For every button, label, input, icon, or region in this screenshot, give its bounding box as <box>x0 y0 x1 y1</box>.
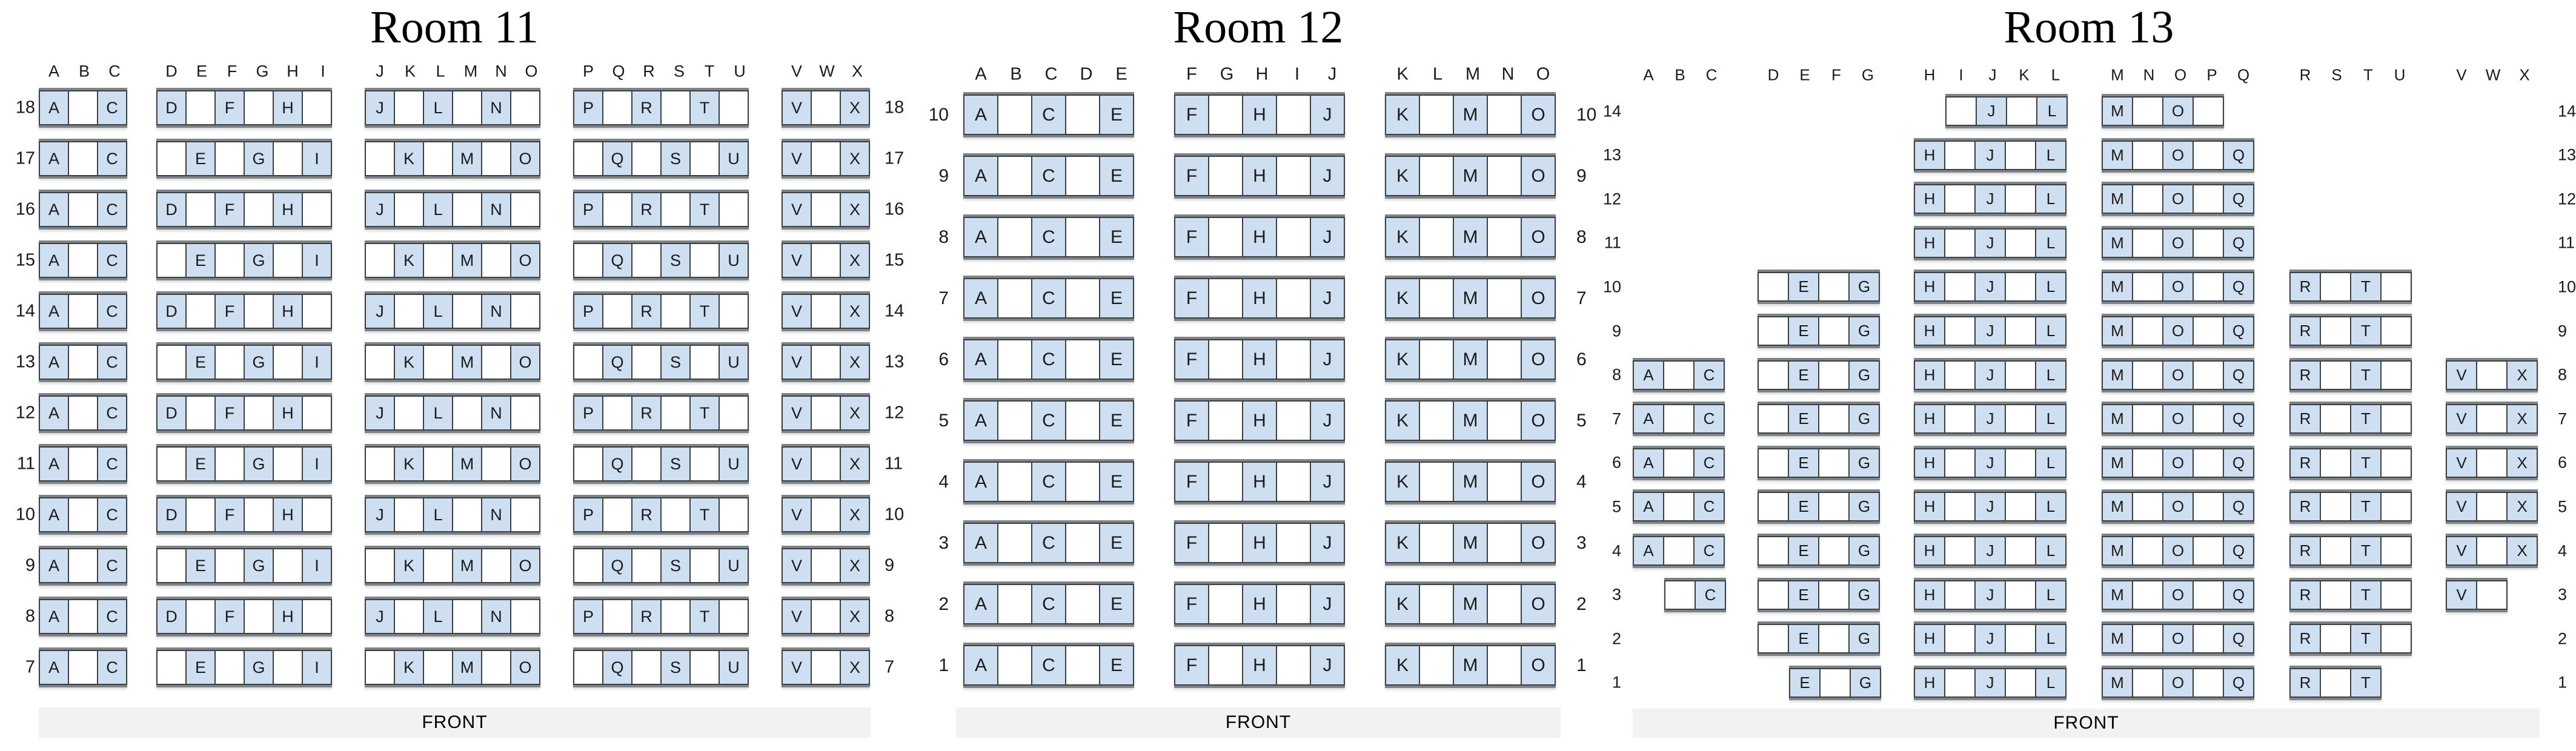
seat-room-12-6A[interactable]: A <box>963 339 998 380</box>
seat-room-11-10C[interactable]: C <box>97 497 127 532</box>
seat-room-13-10J[interactable]: J <box>1974 272 2006 302</box>
seat-room-13-7E[interactable]: E <box>1788 404 1819 434</box>
seat-room-11-8R[interactable]: R <box>631 599 662 634</box>
seat-room-13-11L[interactable]: L <box>2035 228 2066 258</box>
seat-room-12-9C[interactable]: C <box>1031 156 1066 196</box>
seat-room-13-4R[interactable]: R <box>2289 536 2321 566</box>
seat-room-12-4O[interactable]: O <box>1521 462 1556 502</box>
seat-room-13-13H[interactable]: H <box>1914 141 1945 170</box>
seat-room-11-7U[interactable]: U <box>719 650 749 685</box>
seat-room-12-3M[interactable]: M <box>1453 523 1488 563</box>
seat-room-11-11V[interactable]: V <box>782 446 812 481</box>
seat-room-11-11A[interactable]: A <box>39 446 69 481</box>
seat-room-13-8C[interactable]: C <box>1693 360 1725 390</box>
seat-room-13-5H[interactable]: H <box>1914 492 1945 521</box>
seat-room-13-4L[interactable]: L <box>2035 536 2066 566</box>
seat-room-13-9M[interactable]: M <box>2102 316 2133 346</box>
seat-room-12-2H[interactable]: H <box>1242 584 1277 624</box>
seat-room-12-8E[interactable]: E <box>1099 217 1134 257</box>
seat-room-12-8C[interactable]: C <box>1031 217 1066 257</box>
seat-room-12-8A[interactable]: A <box>963 217 998 257</box>
seat-room-12-5F[interactable]: F <box>1174 400 1209 441</box>
seat-room-13-8O[interactable]: O <box>2162 360 2194 390</box>
seat-room-12-3H[interactable]: H <box>1242 523 1277 563</box>
seat-room-13-13Q[interactable]: Q <box>2223 141 2254 170</box>
seat-room-11-17E[interactable]: E <box>185 141 216 176</box>
seat-room-13-7C[interactable]: C <box>1693 404 1725 434</box>
seat-room-11-11E[interactable]: E <box>185 446 216 481</box>
seat-room-13-5T[interactable]: T <box>2350 492 2382 521</box>
seat-room-13-2R[interactable]: R <box>2289 624 2321 653</box>
seat-room-13-2H[interactable]: H <box>1914 624 1945 653</box>
seat-room-11-15E[interactable]: E <box>185 243 216 278</box>
seat-room-13-6A[interactable]: A <box>1633 448 1664 478</box>
seat-room-13-5R[interactable]: R <box>2289 492 2321 521</box>
seat-room-13-12M[interactable]: M <box>2102 184 2133 214</box>
seat-room-11-7A[interactable]: A <box>39 650 69 685</box>
seat-room-13-3G[interactable]: G <box>1848 580 1880 610</box>
seat-room-11-16N[interactable]: N <box>481 192 511 227</box>
seat-room-11-10V[interactable]: V <box>782 497 812 532</box>
seat-room-13-10R[interactable]: R <box>2289 272 2321 302</box>
seat-room-11-10H[interactable]: H <box>273 497 303 532</box>
seat-room-13-10Q[interactable]: Q <box>2223 272 2254 302</box>
seat-room-11-11Q[interactable]: Q <box>602 446 632 481</box>
seat-room-11-15K[interactable]: K <box>394 243 424 278</box>
seat-room-13-9Q[interactable]: Q <box>2223 316 2254 346</box>
seat-room-12-9F[interactable]: F <box>1174 156 1209 196</box>
seat-room-13-7A[interactable]: A <box>1633 404 1664 434</box>
seat-room-12-3F[interactable]: F <box>1174 523 1209 563</box>
seat-room-13-11J[interactable]: J <box>1974 228 2006 258</box>
seat-room-11-17M[interactable]: M <box>452 141 482 176</box>
seat-room-12-3A[interactable]: A <box>963 523 998 563</box>
seat-room-13-2M[interactable]: M <box>2102 624 2133 653</box>
seat-room-11-8H[interactable]: H <box>273 599 303 634</box>
seat-room-13-4G[interactable]: G <box>1848 536 1880 566</box>
seat-room-13-10O[interactable]: O <box>2162 272 2194 302</box>
seat-room-12-10C[interactable]: C <box>1031 94 1066 135</box>
seat-room-13-7V[interactable]: V <box>2446 404 2477 434</box>
seat-room-13-6H[interactable]: H <box>1914 448 1945 478</box>
seat-room-11-8F[interactable]: F <box>214 599 245 634</box>
seat-room-11-18V[interactable]: V <box>782 90 812 125</box>
seat-room-12-9M[interactable]: M <box>1453 156 1488 196</box>
seat-room-13-9T[interactable]: T <box>2350 316 2382 346</box>
seat-room-11-13X[interactable]: X <box>840 345 870 380</box>
seat-room-11-8V[interactable]: V <box>782 599 812 634</box>
seat-room-12-6H[interactable]: H <box>1242 339 1277 380</box>
seat-room-11-12F[interactable]: F <box>214 395 245 431</box>
seat-room-11-18T[interactable]: T <box>689 90 720 125</box>
seat-room-13-12O[interactable]: O <box>2162 184 2194 214</box>
seat-room-13-14M[interactable]: M <box>2102 96 2133 126</box>
seat-room-11-8T[interactable]: T <box>689 599 720 634</box>
seat-room-13-1E[interactable]: E <box>1789 668 1821 698</box>
seat-room-11-13I[interactable]: I <box>302 345 332 380</box>
seat-room-13-8M[interactable]: M <box>2102 360 2133 390</box>
seat-room-13-4T[interactable]: T <box>2350 536 2382 566</box>
seat-room-11-18N[interactable]: N <box>481 90 511 125</box>
seat-room-11-13C[interactable]: C <box>97 345 127 380</box>
seat-room-12-7M[interactable]: M <box>1453 278 1488 319</box>
seat-room-11-9Q[interactable]: Q <box>602 548 632 583</box>
seat-room-13-1M[interactable]: M <box>2102 668 2133 698</box>
seat-room-11-15G[interactable]: G <box>244 243 274 278</box>
seat-room-12-5K[interactable]: K <box>1385 400 1420 441</box>
seat-room-11-14H[interactable]: H <box>273 294 303 329</box>
seat-room-11-9A[interactable]: A <box>39 548 69 583</box>
seat-room-13-2T[interactable]: T <box>2350 624 2382 653</box>
seat-room-13-4O[interactable]: O <box>2162 536 2194 566</box>
seat-room-11-13G[interactable]: G <box>244 345 274 380</box>
seat-room-13-3H[interactable]: H <box>1914 580 1945 610</box>
seat-room-11-7M[interactable]: M <box>452 650 482 685</box>
seat-room-11-15Q[interactable]: Q <box>602 243 632 278</box>
seat-room-11-10X[interactable]: X <box>840 497 870 532</box>
seat-room-11-18X[interactable]: X <box>840 90 870 125</box>
seat-room-13-6C[interactable]: C <box>1693 448 1725 478</box>
seat-room-12-2C[interactable]: C <box>1031 584 1066 624</box>
seat-room-12-3K[interactable]: K <box>1385 523 1420 563</box>
seat-room-13-9J[interactable]: J <box>1974 316 2006 346</box>
seat-room-13-1H[interactable]: H <box>1914 668 1945 698</box>
seat-room-13-6X[interactable]: X <box>2506 448 2538 478</box>
seat-room-12-7J[interactable]: J <box>1310 278 1345 319</box>
seat-room-11-17I[interactable]: I <box>302 141 332 176</box>
seat-room-13-7R[interactable]: R <box>2289 404 2321 434</box>
seat-room-13-1R[interactable]: R <box>2289 668 2321 698</box>
seat-room-11-9X[interactable]: X <box>840 548 870 583</box>
seat-room-11-9E[interactable]: E <box>185 548 216 583</box>
seat-room-11-13V[interactable]: V <box>782 345 812 380</box>
seat-room-12-6E[interactable]: E <box>1099 339 1134 380</box>
seat-room-12-2O[interactable]: O <box>1521 584 1556 624</box>
seat-room-11-17U[interactable]: U <box>719 141 749 176</box>
seat-room-13-3O[interactable]: O <box>2162 580 2194 610</box>
seat-room-13-8H[interactable]: H <box>1914 360 1945 390</box>
seat-room-13-7M[interactable]: M <box>2102 404 2133 434</box>
seat-room-11-12D[interactable]: D <box>156 395 187 431</box>
seat-room-11-8P[interactable]: P <box>573 599 603 634</box>
seat-room-11-7X[interactable]: X <box>840 650 870 685</box>
seat-room-11-12R[interactable]: R <box>631 395 662 431</box>
seat-room-12-10J[interactable]: J <box>1310 94 1345 135</box>
seat-room-13-5A[interactable]: A <box>1633 492 1664 521</box>
seat-room-13-10L[interactable]: L <box>2035 272 2066 302</box>
seat-room-13-5L[interactable]: L <box>2035 492 2066 521</box>
seat-room-11-17V[interactable]: V <box>782 141 812 176</box>
seat-room-11-8L[interactable]: L <box>423 599 453 634</box>
seat-room-13-9R[interactable]: R <box>2289 316 2321 346</box>
seat-room-11-8D[interactable]: D <box>156 599 187 634</box>
seat-room-13-3L[interactable]: L <box>2035 580 2066 610</box>
seat-room-13-11Q[interactable]: Q <box>2223 228 2254 258</box>
seat-room-11-14V[interactable]: V <box>782 294 812 329</box>
seat-room-13-3R[interactable]: R <box>2289 580 2321 610</box>
seat-room-13-5G[interactable]: G <box>1848 492 1880 521</box>
seat-room-11-12H[interactable]: H <box>273 395 303 431</box>
seat-room-11-10P[interactable]: P <box>573 497 603 532</box>
seat-room-12-10F[interactable]: F <box>1174 94 1209 135</box>
seat-room-11-15A[interactable]: A <box>39 243 69 278</box>
seat-room-12-6F[interactable]: F <box>1174 339 1209 380</box>
seat-room-11-7C[interactable]: C <box>97 650 127 685</box>
seat-room-13-6T[interactable]: T <box>2350 448 2382 478</box>
seat-room-11-12V[interactable]: V <box>782 395 812 431</box>
seat-room-13-9L[interactable]: L <box>2035 316 2066 346</box>
seat-room-11-14N[interactable]: N <box>481 294 511 329</box>
seat-room-12-4A[interactable]: A <box>963 462 998 502</box>
seat-room-12-6J[interactable]: J <box>1310 339 1345 380</box>
seat-room-12-9J[interactable]: J <box>1310 156 1345 196</box>
seat-room-13-7J[interactable]: J <box>1974 404 2006 434</box>
seat-room-11-10F[interactable]: F <box>214 497 245 532</box>
seat-room-12-9A[interactable]: A <box>963 156 998 196</box>
seat-room-13-6Q[interactable]: Q <box>2223 448 2254 478</box>
seat-room-12-8J[interactable]: J <box>1310 217 1345 257</box>
seat-room-11-7O[interactable]: O <box>510 650 540 685</box>
seat-room-13-14L[interactable]: L <box>2036 96 2068 126</box>
seat-room-11-16L[interactable]: L <box>423 192 453 227</box>
seat-room-12-4K[interactable]: K <box>1385 462 1420 502</box>
seat-room-12-3O[interactable]: O <box>1521 523 1556 563</box>
seat-room-12-3J[interactable]: J <box>1310 523 1345 563</box>
seat-room-11-13O[interactable]: O <box>510 345 540 380</box>
seat-room-13-13J[interactable]: J <box>1974 141 2006 170</box>
seat-room-13-10M[interactable]: M <box>2102 272 2133 302</box>
seat-room-13-1Q[interactable]: Q <box>2223 668 2254 698</box>
seat-room-12-2A[interactable]: A <box>963 584 998 624</box>
seat-room-11-13M[interactable]: M <box>452 345 482 380</box>
seat-room-11-13K[interactable]: K <box>394 345 424 380</box>
seat-room-11-16H[interactable]: H <box>273 192 303 227</box>
seat-room-11-13S[interactable]: S <box>660 345 691 380</box>
seat-room-11-10J[interactable]: J <box>365 497 395 532</box>
seat-room-12-5M[interactable]: M <box>1453 400 1488 441</box>
seat-room-11-8J[interactable]: J <box>365 599 395 634</box>
seat-room-11-18F[interactable]: F <box>214 90 245 125</box>
seat-room-12-9E[interactable]: E <box>1099 156 1134 196</box>
seat-room-13-4C[interactable]: C <box>1693 536 1725 566</box>
seat-room-13-5C[interactable]: C <box>1693 492 1725 521</box>
seat-room-12-1C[interactable]: C <box>1031 645 1066 686</box>
seat-room-13-2G[interactable]: G <box>1848 624 1880 653</box>
seat-room-12-6O[interactable]: O <box>1521 339 1556 380</box>
seat-room-12-7K[interactable]: K <box>1385 278 1420 319</box>
seat-room-11-12T[interactable]: T <box>689 395 720 431</box>
seat-room-13-9H[interactable]: H <box>1914 316 1945 346</box>
seat-room-11-14R[interactable]: R <box>631 294 662 329</box>
seat-room-13-4J[interactable]: J <box>1974 536 2006 566</box>
seat-room-11-9V[interactable]: V <box>782 548 812 583</box>
seat-room-11-7V[interactable]: V <box>782 650 812 685</box>
seat-room-13-1G[interactable]: G <box>1850 668 1881 698</box>
seat-room-12-4H[interactable]: H <box>1242 462 1277 502</box>
seat-room-13-11O[interactable]: O <box>2162 228 2194 258</box>
seat-room-11-9O[interactable]: O <box>510 548 540 583</box>
seat-room-13-8G[interactable]: G <box>1848 360 1880 390</box>
seat-room-11-11I[interactable]: I <box>302 446 332 481</box>
seat-room-13-3J[interactable]: J <box>1974 580 2006 610</box>
seat-room-11-10D[interactable]: D <box>156 497 187 532</box>
seat-room-13-3E[interactable]: E <box>1788 580 1819 610</box>
seat-room-11-13A[interactable]: A <box>39 345 69 380</box>
seat-room-12-8M[interactable]: M <box>1453 217 1488 257</box>
seat-room-11-18J[interactable]: J <box>365 90 395 125</box>
seat-room-13-7Q[interactable]: Q <box>2223 404 2254 434</box>
seat-room-12-2M[interactable]: M <box>1453 584 1488 624</box>
seat-room-11-12J[interactable]: J <box>365 395 395 431</box>
seat-room-11-16J[interactable]: J <box>365 192 395 227</box>
seat-room-13-1L[interactable]: L <box>2035 668 2066 698</box>
seat-room-11-13E[interactable]: E <box>185 345 216 380</box>
seat-room-13-4X[interactable]: X <box>2506 536 2538 566</box>
seat-room-11-13Q[interactable]: Q <box>602 345 632 380</box>
seat-room-12-10E[interactable]: E <box>1099 94 1134 135</box>
seat-room-12-6C[interactable]: C <box>1031 339 1066 380</box>
seat-room-13-9E[interactable]: E <box>1788 316 1819 346</box>
seat-room-12-7C[interactable]: C <box>1031 278 1066 319</box>
seat-room-11-18R[interactable]: R <box>631 90 662 125</box>
seat-room-11-18D[interactable]: D <box>156 90 187 125</box>
seat-room-13-14O[interactable]: O <box>2162 96 2194 126</box>
seat-room-12-3C[interactable]: C <box>1031 523 1066 563</box>
seat-room-13-12H[interactable]: H <box>1914 184 1945 214</box>
seat-room-11-14X[interactable]: X <box>840 294 870 329</box>
seat-room-11-11K[interactable]: K <box>394 446 424 481</box>
seat-room-13-2J[interactable]: J <box>1974 624 2006 653</box>
seat-room-11-14P[interactable]: P <box>573 294 603 329</box>
seat-room-12-2E[interactable]: E <box>1099 584 1134 624</box>
seat-room-13-7H[interactable]: H <box>1914 404 1945 434</box>
seat-room-11-18C[interactable]: C <box>97 90 127 125</box>
seat-room-13-5O[interactable]: O <box>2162 492 2194 521</box>
seat-room-11-16P[interactable]: P <box>573 192 603 227</box>
seat-room-12-10O[interactable]: O <box>1521 94 1556 135</box>
seat-room-13-9O[interactable]: O <box>2162 316 2194 346</box>
seat-room-13-12Q[interactable]: Q <box>2223 184 2254 214</box>
seat-room-13-12J[interactable]: J <box>1974 184 2006 214</box>
seat-room-11-14D[interactable]: D <box>156 294 187 329</box>
seat-room-13-10G[interactable]: G <box>1848 272 1880 302</box>
seat-room-13-12L[interactable]: L <box>2035 184 2066 214</box>
seat-room-11-7G[interactable]: G <box>244 650 274 685</box>
seat-room-11-17C[interactable]: C <box>97 141 127 176</box>
seat-room-11-9K[interactable]: K <box>394 548 424 583</box>
seat-room-11-10N[interactable]: N <box>481 497 511 532</box>
seat-room-11-12N[interactable]: N <box>481 395 511 431</box>
seat-room-12-5J[interactable]: J <box>1310 400 1345 441</box>
seat-room-11-12P[interactable]: P <box>573 395 603 431</box>
seat-room-13-10H[interactable]: H <box>1914 272 1945 302</box>
seat-room-13-1J[interactable]: J <box>1974 668 2006 698</box>
seat-room-13-8L[interactable]: L <box>2035 360 2066 390</box>
seat-room-12-4F[interactable]: F <box>1174 462 1209 502</box>
seat-room-11-11O[interactable]: O <box>510 446 540 481</box>
seat-room-13-11H[interactable]: H <box>1914 228 1945 258</box>
seat-room-11-7S[interactable]: S <box>660 650 691 685</box>
seat-room-13-4E[interactable]: E <box>1788 536 1819 566</box>
seat-room-12-7F[interactable]: F <box>1174 278 1209 319</box>
seat-room-11-16X[interactable]: X <box>840 192 870 227</box>
seat-room-11-15M[interactable]: M <box>452 243 482 278</box>
seat-room-12-2K[interactable]: K <box>1385 584 1420 624</box>
seat-room-12-5H[interactable]: H <box>1242 400 1277 441</box>
seat-room-13-3T[interactable]: T <box>2350 580 2382 610</box>
seat-room-12-1J[interactable]: J <box>1310 645 1345 686</box>
seat-room-13-7T[interactable]: T <box>2350 404 2382 434</box>
seat-room-12-5E[interactable]: E <box>1099 400 1134 441</box>
seat-room-13-5J[interactable]: J <box>1974 492 2006 521</box>
seat-room-11-16D[interactable]: D <box>156 192 187 227</box>
seat-room-13-1T[interactable]: T <box>2350 668 2382 698</box>
seat-room-13-10E[interactable]: E <box>1788 272 1819 302</box>
seat-room-12-2F[interactable]: F <box>1174 584 1209 624</box>
seat-room-11-17O[interactable]: O <box>510 141 540 176</box>
seat-room-11-12C[interactable]: C <box>97 395 127 431</box>
seat-room-12-9O[interactable]: O <box>1521 156 1556 196</box>
seat-room-13-14J[interactable]: J <box>1976 96 2007 126</box>
seat-room-12-3E[interactable]: E <box>1099 523 1134 563</box>
seat-room-11-16V[interactable]: V <box>782 192 812 227</box>
seat-room-13-8E[interactable]: E <box>1788 360 1819 390</box>
seat-room-12-8F[interactable]: F <box>1174 217 1209 257</box>
seat-room-13-4A[interactable]: A <box>1633 536 1664 566</box>
seat-room-13-8R[interactable]: R <box>2289 360 2321 390</box>
seat-room-11-13U[interactable]: U <box>719 345 749 380</box>
seat-room-12-6M[interactable]: M <box>1453 339 1488 380</box>
seat-room-13-7L[interactable]: L <box>2035 404 2066 434</box>
seat-room-11-11G[interactable]: G <box>244 446 274 481</box>
seat-room-13-6G[interactable]: G <box>1848 448 1880 478</box>
seat-room-13-7O[interactable]: O <box>2162 404 2194 434</box>
seat-room-11-8X[interactable]: X <box>840 599 870 634</box>
seat-room-12-7A[interactable]: A <box>963 278 998 319</box>
seat-room-12-9H[interactable]: H <box>1242 156 1277 196</box>
seat-room-13-4H[interactable]: H <box>1914 536 1945 566</box>
seat-room-13-6V[interactable]: V <box>2446 448 2477 478</box>
seat-room-12-10M[interactable]: M <box>1453 94 1488 135</box>
seat-room-12-10H[interactable]: H <box>1242 94 1277 135</box>
seat-room-11-17A[interactable]: A <box>39 141 69 176</box>
seat-room-11-14C[interactable]: C <box>97 294 127 329</box>
seat-room-11-15I[interactable]: I <box>302 243 332 278</box>
seat-room-11-18L[interactable]: L <box>423 90 453 125</box>
seat-room-11-11C[interactable]: C <box>97 446 127 481</box>
seat-room-11-9M[interactable]: M <box>452 548 482 583</box>
seat-room-11-18A[interactable]: A <box>39 90 69 125</box>
seat-room-11-10L[interactable]: L <box>423 497 453 532</box>
seat-room-11-16T[interactable]: T <box>689 192 720 227</box>
seat-room-13-8X[interactable]: X <box>2506 360 2538 390</box>
seat-room-13-6M[interactable]: M <box>2102 448 2133 478</box>
seat-room-12-1E[interactable]: E <box>1099 645 1134 686</box>
seat-room-11-15V[interactable]: V <box>782 243 812 278</box>
seat-room-11-14F[interactable]: F <box>214 294 245 329</box>
seat-room-11-10A[interactable]: A <box>39 497 69 532</box>
seat-room-13-5Q[interactable]: Q <box>2223 492 2254 521</box>
seat-room-11-9I[interactable]: I <box>302 548 332 583</box>
seat-room-11-14T[interactable]: T <box>689 294 720 329</box>
seat-room-13-8Q[interactable]: Q <box>2223 360 2254 390</box>
seat-room-12-1O[interactable]: O <box>1521 645 1556 686</box>
seat-room-11-17K[interactable]: K <box>394 141 424 176</box>
seat-room-13-2L[interactable]: L <box>2035 624 2066 653</box>
seat-room-13-2Q[interactable]: Q <box>2223 624 2254 653</box>
seat-room-12-10K[interactable]: K <box>1385 94 1420 135</box>
seat-room-13-11M[interactable]: M <box>2102 228 2133 258</box>
